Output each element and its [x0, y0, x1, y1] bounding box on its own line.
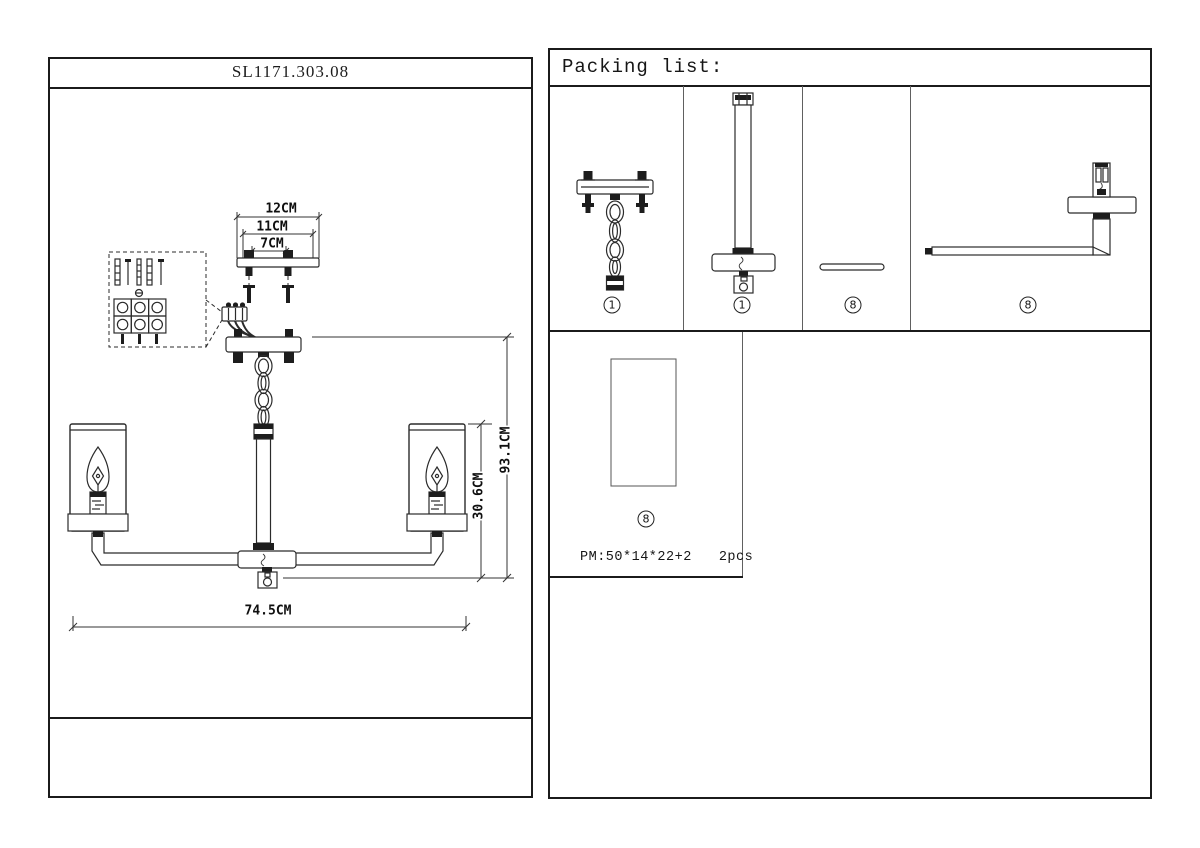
chandelier-technical-drawing	[48, 85, 533, 717]
suspension-rod	[253, 424, 274, 550]
bracket-bolt-left	[243, 250, 255, 303]
part-rod-hub-drawing	[712, 93, 775, 293]
dim-bracket-outer: 12CM	[264, 203, 297, 216]
carton-quantity: 2pcs	[719, 550, 753, 565]
terminal-block-icon	[114, 299, 166, 344]
left-footer-divider	[50, 717, 531, 719]
dim-total-height: 93.1CM	[500, 426, 513, 475]
item-number-badge: 1	[604, 297, 621, 314]
carton-box-drawing	[611, 359, 676, 486]
bracket-bolt-right	[282, 250, 294, 303]
ceiling-canopy	[226, 329, 301, 363]
shade-holder-ring	[68, 514, 128, 531]
dim-bracket-holes: 7CM	[259, 238, 284, 251]
wall-anchor-icon	[115, 259, 152, 285]
screw-icon	[125, 259, 164, 285]
carton-info: PM:50*14*22+22pcs	[580, 550, 753, 565]
wire-connector-block	[222, 302, 247, 321]
central-hub	[238, 551, 296, 588]
lamp-assembly-right	[407, 424, 467, 537]
part-bracket-chain-drawing	[577, 171, 653, 290]
hardware-kit-box	[109, 252, 222, 347]
item-number-badge: 8	[845, 297, 862, 314]
item-number-badge: 1	[734, 297, 751, 314]
hanging-chain	[255, 352, 272, 428]
mounting-bracket-drawing	[237, 250, 319, 303]
candle-socket	[90, 492, 106, 514]
carton-dimensions: PM:50*14*22+2	[580, 550, 692, 565]
item-number-badge: 8	[1020, 297, 1037, 314]
dim-bracket-middle: 11CM	[255, 221, 288, 234]
packing-list-drawings	[548, 85, 1152, 800]
dim-body-height: 30.6CM	[473, 472, 486, 521]
dim-total-width: 74.5CM	[244, 605, 293, 618]
page: SL1171.303.08	[0, 0, 1200, 848]
lamp-assembly	[68, 424, 128, 537]
packing-list-title: Packing list:	[550, 50, 1150, 87]
round-head-screw-icon	[136, 290, 143, 297]
part-lamp-arm-drawing	[925, 163, 1136, 255]
part-glass-panel-drawing	[820, 264, 884, 270]
carton-number-badge: 8	[638, 511, 655, 528]
